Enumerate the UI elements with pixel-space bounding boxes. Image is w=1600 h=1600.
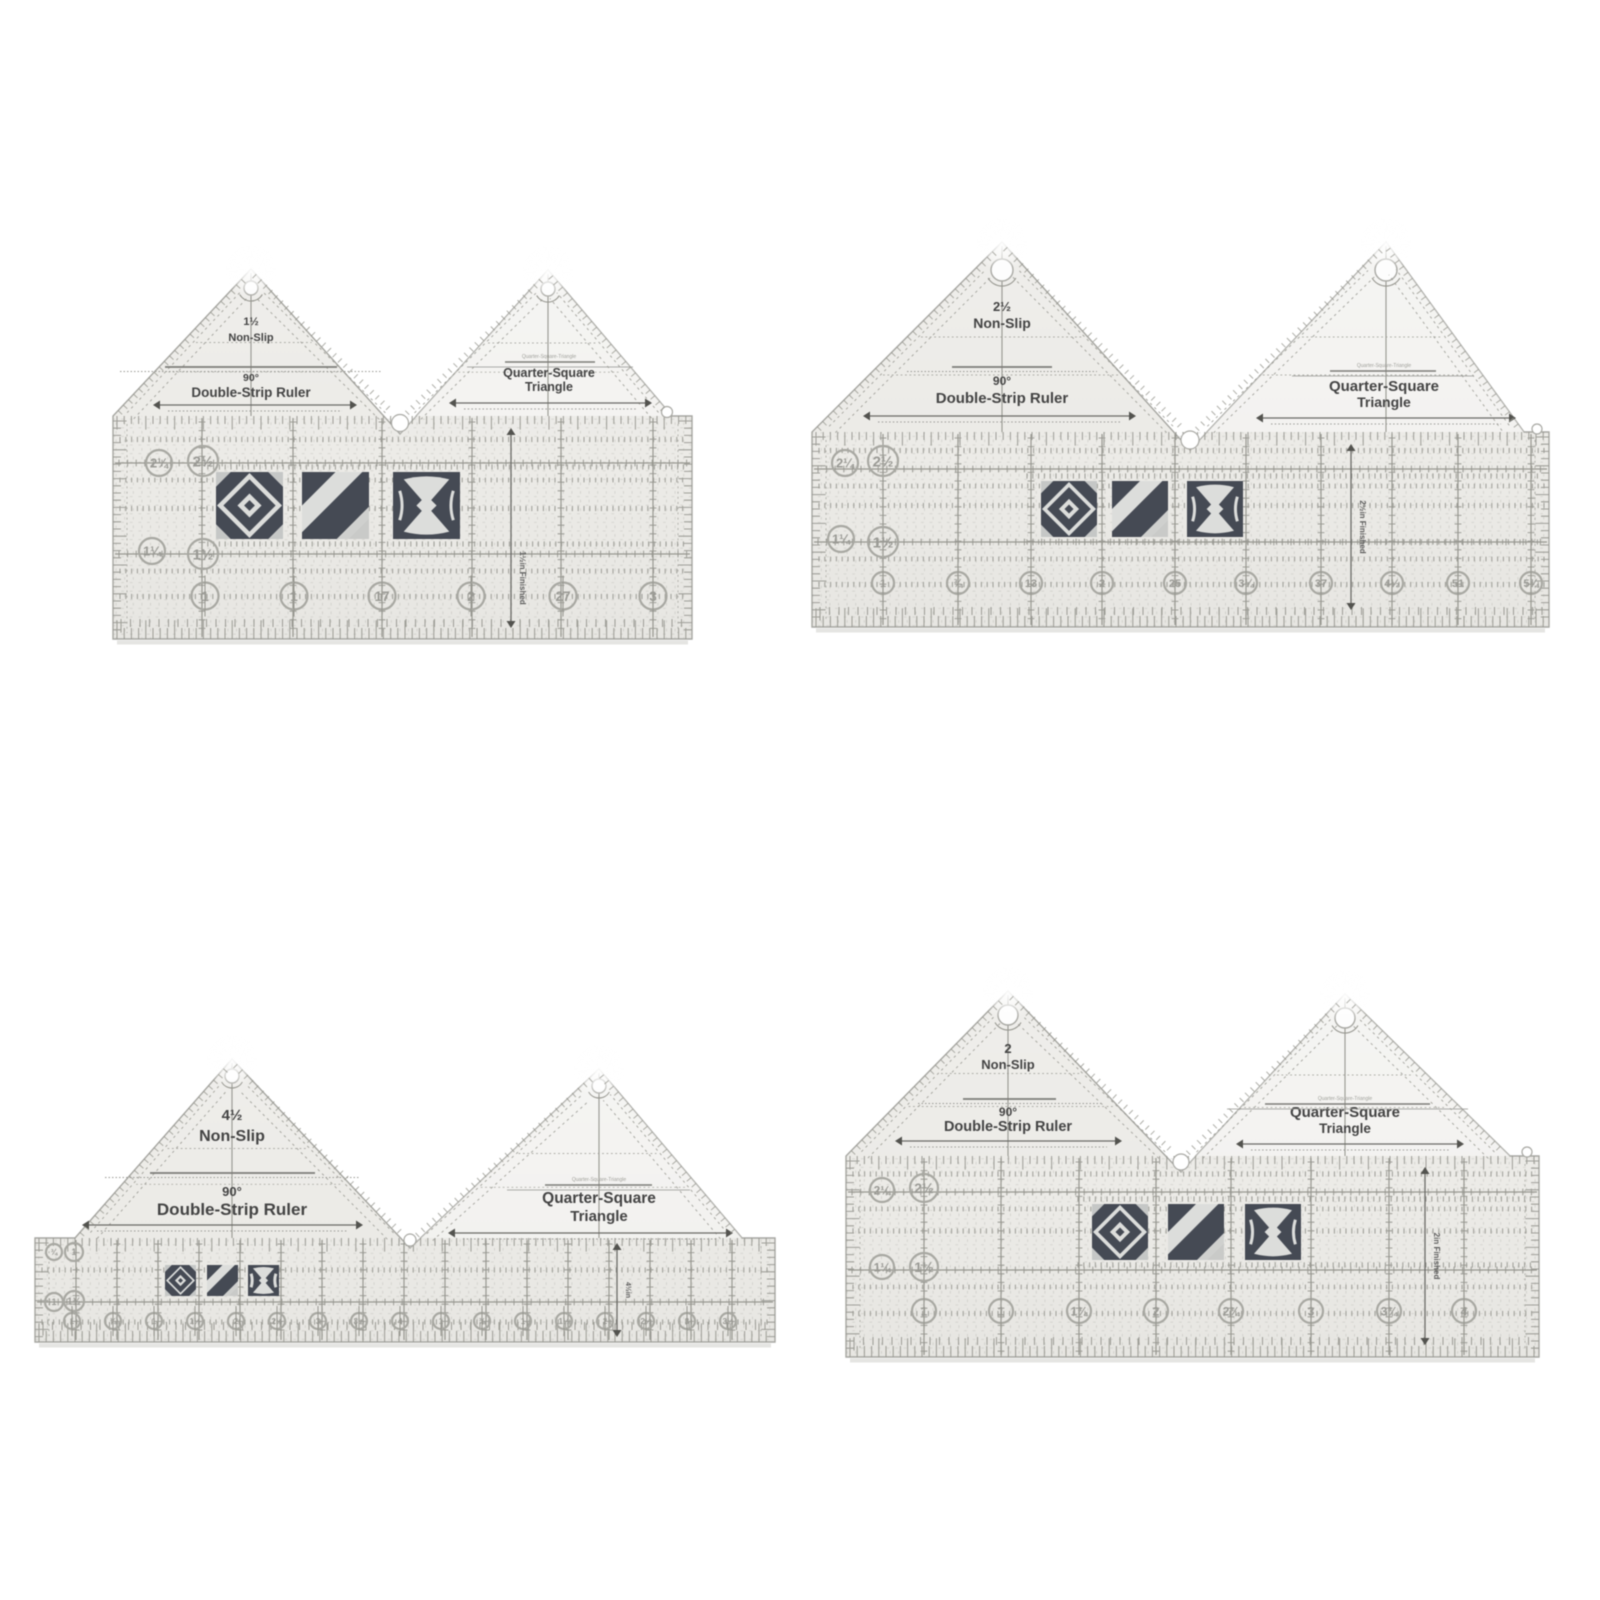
svg-text:Triangle: Triangle — [1319, 1121, 1371, 1136]
svg-text:1½: 1½ — [873, 534, 894, 551]
svg-text:2¼: 2¼ — [836, 456, 855, 471]
svg-text:2: 2 — [1004, 1041, 1011, 1056]
svg-text:Non-Slip: Non-Slip — [228, 332, 273, 344]
svg-text:1: 1 — [51, 1297, 56, 1307]
svg-text:1¼: 1¼ — [874, 1260, 892, 1274]
svg-text:1½in Finished: 1½in Finished — [518, 551, 527, 604]
svg-text:1½: 1½ — [193, 546, 214, 563]
svg-text:2in Finished: 2in Finished — [1432, 1233, 1441, 1280]
svg-text:Triangle: Triangle — [570, 1208, 628, 1225]
svg-text:2½: 2½ — [873, 453, 894, 470]
svg-text:Quarter-Square-Triangle: Quarter-Square-Triangle — [1357, 363, 1412, 369]
svg-text:Double-Strip Ruler: Double-Strip Ruler — [936, 390, 1069, 407]
svg-text:1¼: 1¼ — [832, 532, 851, 547]
svg-text:2½: 2½ — [993, 299, 1011, 314]
svg-text:Double-Strip Ruler: Double-Strip Ruler — [944, 1119, 1072, 1135]
svg-text:Non-Slip: Non-Slip — [199, 1128, 265, 1145]
svg-text:90°: 90° — [999, 1105, 1017, 1119]
svg-text:2½in Finished: 2½in Finished — [1358, 500, 1367, 553]
svg-text:Non-Slip: Non-Slip — [981, 1057, 1034, 1072]
svg-text:Quarter-Square-Triangle: Quarter-Square-Triangle — [522, 354, 577, 360]
svg-text:Triangle: Triangle — [1357, 394, 1411, 410]
svg-text:2½: 2½ — [193, 453, 214, 470]
svg-text:90°: 90° — [243, 372, 259, 384]
svg-text:90°: 90° — [993, 374, 1011, 388]
svg-text:Non-Slip: Non-Slip — [973, 315, 1031, 331]
svg-text:Quarter-Square-Triangle: Quarter-Square-Triangle — [1318, 1096, 1373, 1102]
svg-text:Quarter-Square: Quarter-Square — [503, 366, 595, 380]
svg-text:Quarter-Square: Quarter-Square — [1329, 378, 1439, 395]
svg-text:90°: 90° — [222, 1184, 242, 1199]
svg-text:4½: 4½ — [222, 1107, 243, 1124]
svg-text:Double-Strip Ruler: Double-Strip Ruler — [157, 1200, 308, 1219]
svg-text:Triangle: Triangle — [525, 380, 573, 394]
svg-text:Quarter-Square: Quarter-Square — [542, 1190, 656, 1207]
svg-text:4½in: 4½in — [624, 1282, 632, 1298]
svg-text:1½: 1½ — [243, 316, 258, 328]
svg-text:1½: 1½ — [67, 1297, 81, 1308]
svg-text:2¼: 2¼ — [874, 1183, 892, 1197]
svg-text:1: 1 — [71, 1247, 76, 1257]
svg-text:Double-Strip Ruler: Double-Strip Ruler — [191, 385, 311, 400]
svg-text:Quarter-Square-Triangle: Quarter-Square-Triangle — [572, 1177, 627, 1183]
svg-text:1¼: 1¼ — [143, 544, 162, 559]
svg-text:1½: 1½ — [914, 1259, 934, 1275]
svg-text:Quarter-Square: Quarter-Square — [1290, 1104, 1400, 1121]
svg-text:2¼: 2¼ — [150, 456, 169, 471]
svg-text:2½: 2½ — [914, 1180, 934, 1196]
